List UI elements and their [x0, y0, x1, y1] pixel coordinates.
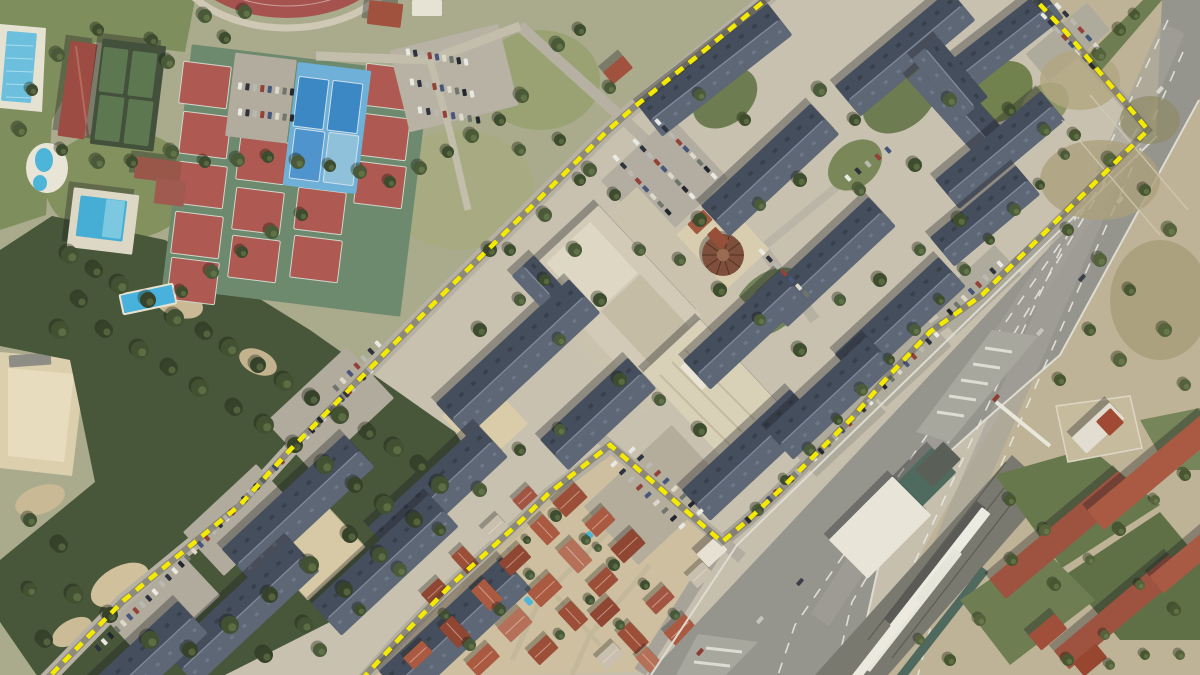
orthophoto-canvas	[0, 0, 1200, 675]
aerial-map-view[interactable]	[0, 0, 1200, 675]
